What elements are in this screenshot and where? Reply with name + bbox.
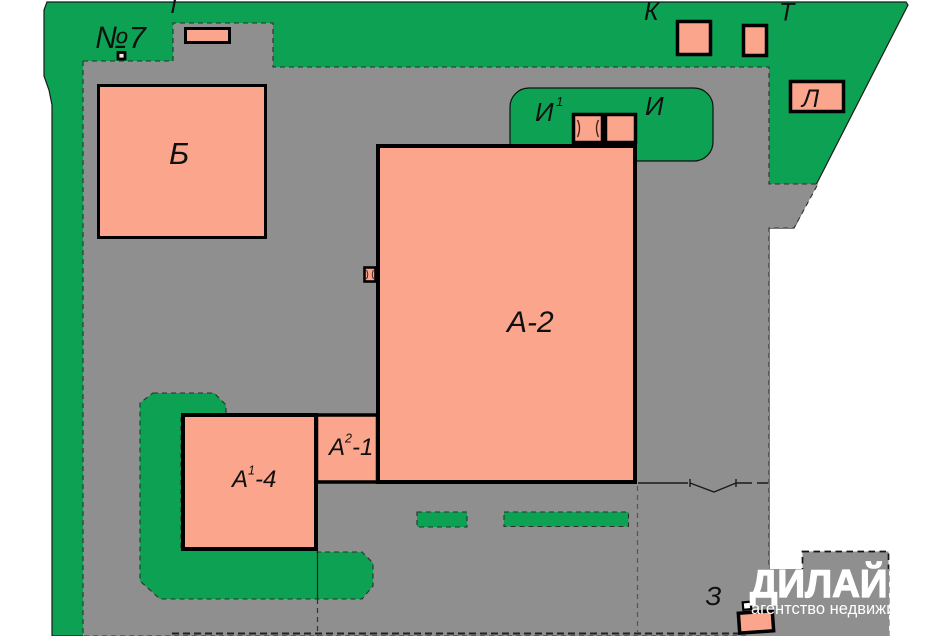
svg-text:И: И <box>535 97 554 127</box>
svg-text:Б: Б <box>169 136 189 171</box>
svg-text:К: К <box>644 0 660 26</box>
svg-text:Г: Г <box>171 0 186 19</box>
svg-text:№7: №7 <box>95 20 148 55</box>
svg-text:И: И <box>645 91 664 121</box>
svg-text:Т: Т <box>779 0 796 27</box>
svg-text:Л: Л <box>800 85 820 113</box>
svg-text:1: 1 <box>556 94 563 109</box>
svg-text:А-2: А-2 <box>505 306 554 339</box>
svg-text:З: З <box>706 581 722 611</box>
svg-text:агентство недвижимости: агентство недвижимости <box>751 600 941 618</box>
